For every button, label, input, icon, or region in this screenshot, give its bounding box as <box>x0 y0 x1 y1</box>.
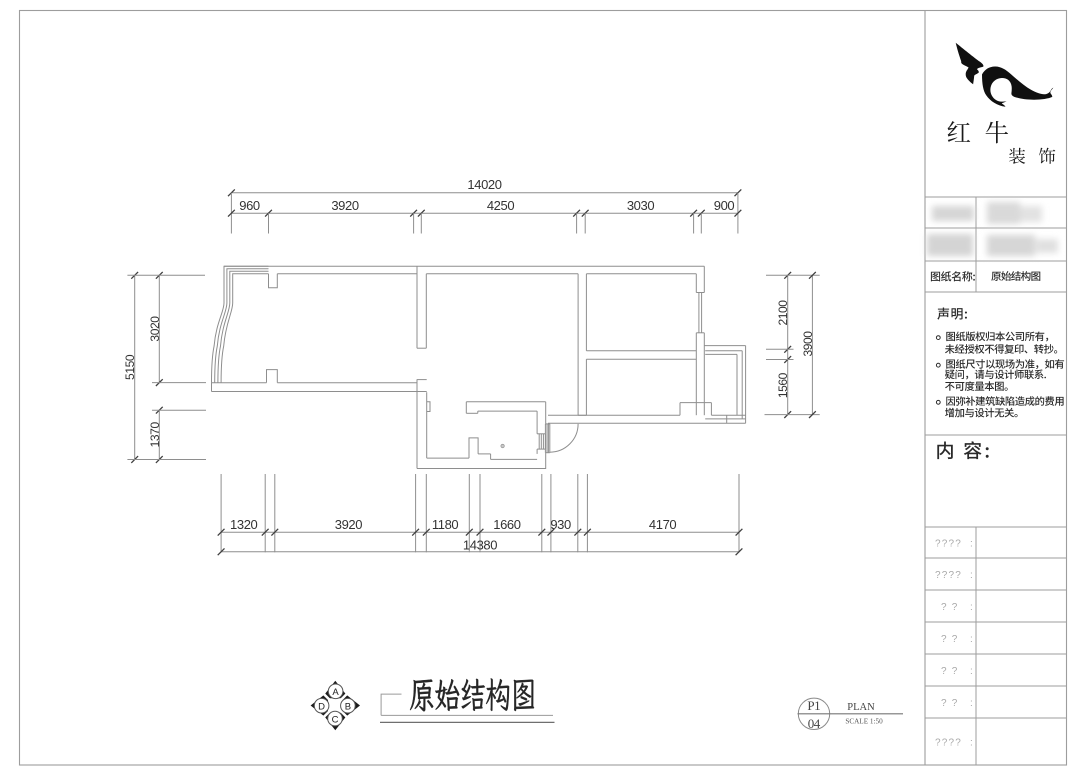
svg-text:D: D <box>318 702 325 713</box>
svg-text:4170: 4170 <box>649 517 676 532</box>
svg-text:14020: 14020 <box>467 177 501 192</box>
svg-text:4250: 4250 <box>487 198 514 213</box>
svg-text:PLAN: PLAN <box>847 702 875 713</box>
svg-text:1370: 1370 <box>148 422 162 448</box>
svg-text:3030: 3030 <box>627 198 654 213</box>
svg-text:3920: 3920 <box>335 517 362 532</box>
svg-text:? ?: ? ? <box>941 634 959 645</box>
svg-text:1660: 1660 <box>493 517 520 532</box>
svg-text:2100: 2100 <box>776 300 790 326</box>
svg-text:C: C <box>332 714 339 725</box>
svg-text::: : <box>970 738 972 749</box>
svg-text:P1: P1 <box>807 698 820 713</box>
svg-text:3920: 3920 <box>331 198 358 213</box>
svg-text:????: ???? <box>935 738 962 749</box>
svg-text:5150: 5150 <box>123 354 137 380</box>
svg-text:? ?: ? ? <box>941 602 959 613</box>
svg-text:? ?: ? ? <box>941 698 959 709</box>
svg-text::: : <box>970 666 972 677</box>
svg-text:1180: 1180 <box>432 517 459 532</box>
svg-text:? ?: ? ? <box>941 666 959 677</box>
svg-text:14380: 14380 <box>463 538 497 553</box>
svg-text::: : <box>970 634 972 645</box>
svg-text:????: ???? <box>935 570 962 581</box>
svg-text:900: 900 <box>714 198 735 213</box>
svg-text:B: B <box>345 702 351 713</box>
svg-text::: : <box>970 570 972 581</box>
svg-text:3900: 3900 <box>801 331 815 357</box>
svg-text:04: 04 <box>808 716 821 731</box>
svg-text:1320: 1320 <box>230 517 257 532</box>
svg-text:A: A <box>332 687 339 698</box>
svg-text::: : <box>970 602 972 613</box>
svg-text:1560: 1560 <box>776 372 790 398</box>
svg-text:930: 930 <box>550 517 571 532</box>
svg-text::: : <box>970 698 972 709</box>
svg-text::: : <box>970 539 972 550</box>
svg-text:960: 960 <box>239 198 260 213</box>
svg-text:SCALE 1:50: SCALE 1:50 <box>845 718 883 726</box>
svg-text:????: ???? <box>935 539 962 550</box>
svg-text:3020: 3020 <box>148 316 162 342</box>
